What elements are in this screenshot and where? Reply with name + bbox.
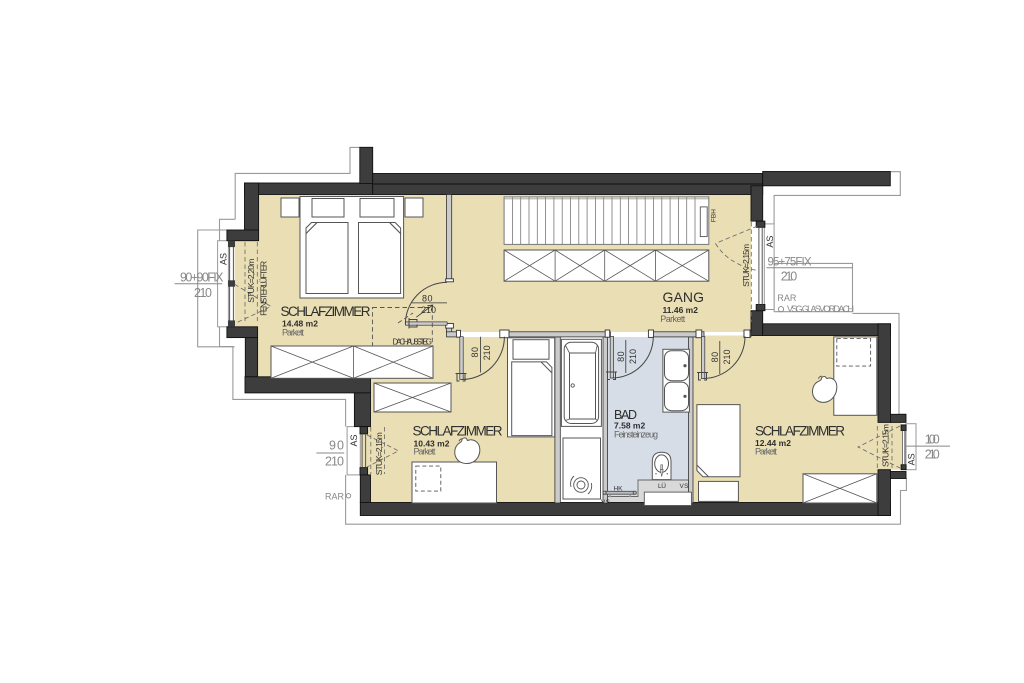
svg-text:DACHAUSSTIEG: DACHAUSSTIEG (393, 338, 433, 347)
svg-text:STUK=2,15m: STUK=2,15m (374, 432, 384, 475)
svg-text:FENSTERLÜFTER: FENSTERLÜFTER (259, 261, 269, 316)
svg-text:RAR: RAR (777, 293, 797, 303)
svg-text:210: 210 (781, 270, 798, 284)
svg-text:80: 80 (470, 347, 480, 358)
svg-text:STUK=2,15m: STUK=2,15m (881, 424, 891, 467)
svg-text:210: 210 (628, 349, 638, 364)
svg-text:210: 210 (325, 455, 344, 469)
svg-text:STUK=2,20m: STUK=2,20m (246, 259, 256, 303)
svg-text:GANG: GANG (663, 289, 705, 305)
svg-text:80: 80 (616, 351, 626, 362)
svg-text:AS: AS (218, 253, 228, 265)
svg-text:Parkett: Parkett (414, 447, 436, 457)
svg-text:SCHLAFZIMMER: SCHLAFZIMMER (413, 423, 503, 438)
svg-text:95+75FIX: 95+75FIX (768, 257, 812, 269)
svg-text:AS: AS (907, 453, 917, 465)
svg-text:210: 210 (925, 447, 940, 461)
svg-text:210: 210 (194, 286, 212, 300)
svg-text:210: 210 (482, 345, 492, 360)
svg-text:Feinsteinzeug: Feinsteinzeug (614, 430, 658, 440)
svg-text:90: 90 (329, 439, 344, 453)
svg-text:RAR: RAR (325, 491, 345, 501)
svg-text:VS: VS (601, 499, 611, 506)
svg-text:VSG GLASVORDACH: VSG GLASVORDACH (787, 304, 854, 314)
svg-text:90+90FIX: 90+90FIX (180, 271, 224, 285)
svg-text:80: 80 (710, 352, 720, 363)
svg-text:SCHLAFZIMMER: SCHLAFZIMMER (281, 304, 371, 319)
svg-text:HK: HK (614, 486, 624, 493)
svg-text:100: 100 (925, 433, 940, 447)
svg-text:80: 80 (422, 294, 433, 304)
svg-text:Parkett: Parkett (282, 328, 304, 338)
svg-text:AS: AS (349, 435, 359, 447)
svg-text:Parkett: Parkett (755, 447, 777, 457)
svg-text:VS: VS (680, 483, 690, 490)
svg-text:AS: AS (765, 236, 775, 248)
svg-text:210: 210 (722, 350, 732, 365)
svg-text:LÜ: LÜ (658, 482, 666, 490)
svg-text:210: 210 (421, 305, 436, 315)
svg-text:FBH: FBH (711, 209, 718, 222)
svg-text:Parkett: Parkett (660, 314, 685, 324)
svg-text:STUK=2,15m: STUK=2,15m (741, 244, 751, 287)
svg-text:SCHLAFZIMMER: SCHLAFZIMMER (755, 423, 845, 438)
